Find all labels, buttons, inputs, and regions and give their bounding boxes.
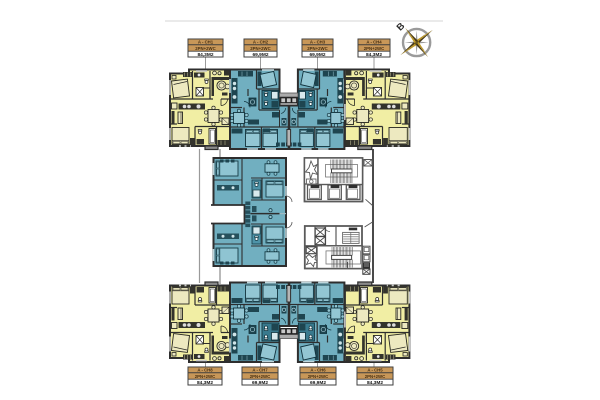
svg-text:2PN+2WC: 2PN+2WC [364, 46, 384, 51]
svg-text:84,3M2: 84,3M2 [366, 52, 382, 58]
svg-text:84,3M2: 84,3M2 [197, 380, 213, 386]
svg-text:2PN+2WC: 2PN+2WC [250, 46, 270, 51]
svg-text:A - CH3: A - CH3 [310, 39, 326, 44]
svg-text:A - CH2: A - CH2 [253, 39, 269, 44]
svg-text:A - CH6: A - CH6 [310, 367, 326, 372]
svg-text:2PN+2WC: 2PN+2WC [308, 374, 328, 379]
svg-text:A - CH8: A - CH8 [197, 367, 213, 372]
svg-text:84,3M2: 84,3M2 [198, 52, 214, 58]
svg-text:69,9M2: 69,9M2 [310, 380, 326, 386]
svg-text:2PN+2WC: 2PN+2WC [195, 46, 215, 51]
svg-text:A - CH1: A - CH1 [198, 39, 214, 44]
svg-text:2PN+2WC: 2PN+2WC [307, 46, 327, 51]
svg-text:2PN+2WC: 2PN+2WC [250, 374, 270, 379]
svg-text:2PN+2WC: 2PN+2WC [195, 374, 215, 379]
svg-text:69,9M2: 69,9M2 [253, 52, 269, 58]
svg-text:84,3M2: 84,3M2 [367, 380, 383, 386]
svg-text:A - CH4: A - CH4 [366, 39, 382, 44]
svg-text:A - CH7: A - CH7 [252, 367, 268, 372]
svg-text:2PN+2WC: 2PN+2WC [365, 374, 385, 379]
svg-text:69,9M2: 69,9M2 [252, 380, 268, 386]
svg-text:A - CH5: A - CH5 [367, 367, 383, 372]
svg-text:69,9M2: 69,9M2 [310, 52, 326, 58]
